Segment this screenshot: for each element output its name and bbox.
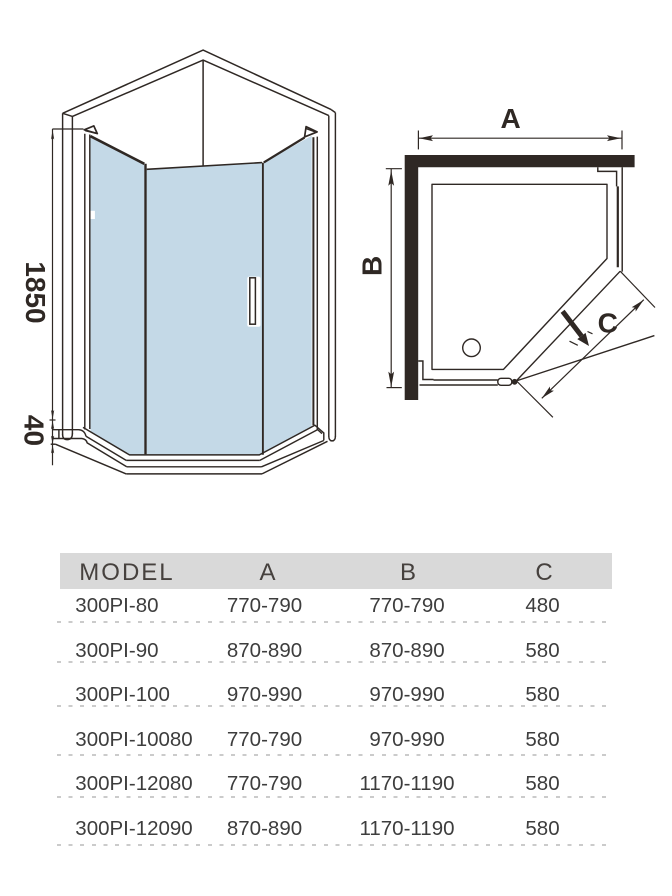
svg-text:B: B — [356, 256, 387, 276]
svg-text:A: A — [500, 103, 520, 134]
svg-text:1850: 1850 — [20, 261, 51, 323]
svg-text:C: C — [598, 308, 618, 339]
svg-text:40: 40 — [19, 415, 50, 446]
